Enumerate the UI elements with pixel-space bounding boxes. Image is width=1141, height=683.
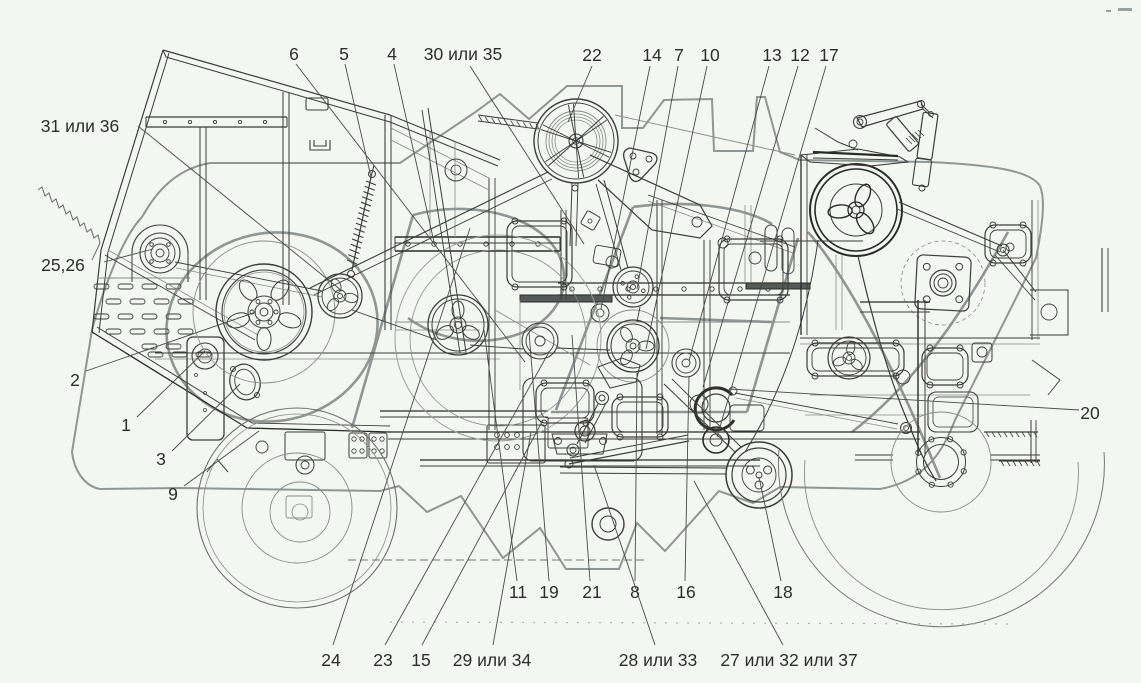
svg-text:30 или 35: 30 или 35 xyxy=(424,44,502,64)
svg-text:14: 14 xyxy=(642,45,662,65)
svg-text:7: 7 xyxy=(674,45,684,65)
svg-text:23: 23 xyxy=(373,650,392,670)
svg-text:2: 2 xyxy=(70,370,80,390)
svg-text:8: 8 xyxy=(630,582,640,602)
svg-text:24: 24 xyxy=(321,650,341,670)
svg-text:28 или 33: 28 или 33 xyxy=(619,650,697,670)
svg-text:19: 19 xyxy=(539,582,558,602)
svg-text:27 или 32 или 37: 27 или 32 или 37 xyxy=(720,650,857,670)
svg-text:11: 11 xyxy=(509,582,527,602)
svg-text:31 или 36: 31 или 36 xyxy=(41,116,119,136)
svg-text:3: 3 xyxy=(156,449,166,469)
svg-text:13: 13 xyxy=(762,45,781,65)
svg-text:5: 5 xyxy=(339,44,349,64)
svg-text:16: 16 xyxy=(676,582,695,602)
svg-text:1: 1 xyxy=(121,415,131,435)
svg-text:20: 20 xyxy=(1080,403,1100,423)
svg-text:12: 12 xyxy=(790,45,809,65)
svg-text:21: 21 xyxy=(582,582,601,602)
svg-text:9: 9 xyxy=(168,484,178,504)
svg-text:25,26: 25,26 xyxy=(41,255,85,275)
svg-text:18: 18 xyxy=(773,582,792,602)
svg-text:22: 22 xyxy=(582,45,601,65)
svg-text:17: 17 xyxy=(819,45,838,65)
svg-text:4: 4 xyxy=(387,44,397,64)
svg-text:6: 6 xyxy=(289,44,299,64)
svg-text:29 или 34: 29 или 34 xyxy=(453,650,532,670)
svg-text:15: 15 xyxy=(411,650,430,670)
svg-text:10: 10 xyxy=(700,45,720,65)
